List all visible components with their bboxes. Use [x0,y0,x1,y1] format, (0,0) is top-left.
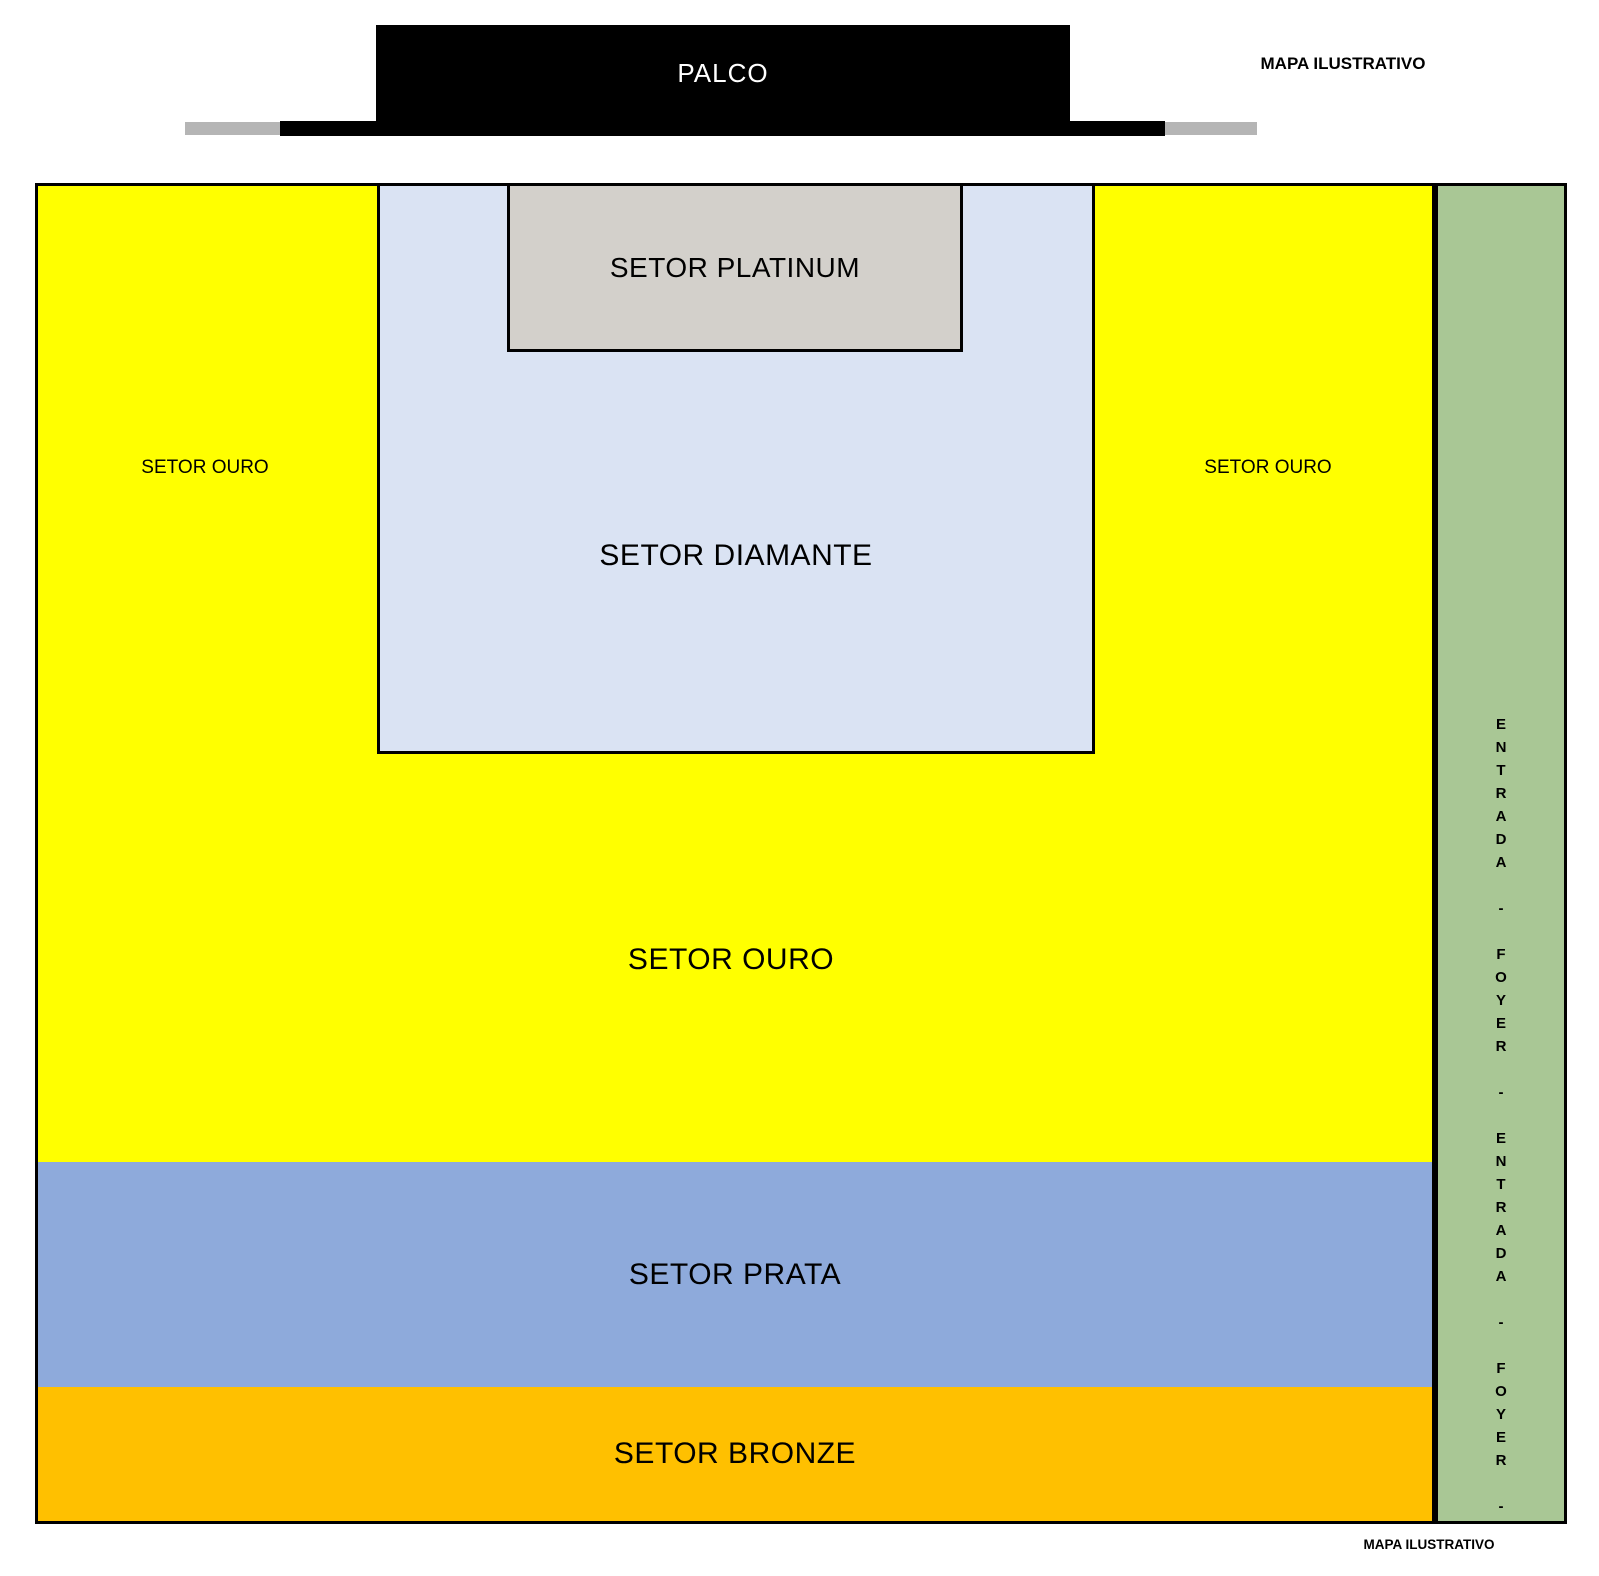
sector-diamante-label: SETOR DIAMANTE [599,539,872,573]
entrance-foyer-strip-text: ENTRADA-FOYER-ENTRADA-FOYER- [1438,186,1564,1518]
entrance-strip-char: A [1438,851,1564,874]
entrance-strip-char: F [1438,943,1564,966]
sector-ouro-label-right: SETOR OURO [1204,457,1331,479]
stage-wing-right [1165,122,1257,135]
entrance-strip-char: F [1438,1357,1564,1380]
entrance-strip-char: A [1438,805,1564,828]
entrance-strip-char: R [1438,1449,1564,1472]
entrance-strip-char: - [1438,1081,1564,1104]
entrance-strip-char: T [1438,1173,1564,1196]
entrance-strip-char: - [1438,1311,1564,1334]
entrance-strip-char: O [1438,1380,1564,1403]
sector-ouro: SETOR PLATINUM SETOR DIAMANTE SETOR OURO… [38,186,1432,1162]
sector-prata: SETOR PRATA [38,1162,1432,1387]
entrance-strip-char [1438,1288,1564,1311]
sector-bronze-label: SETOR BRONZE [614,1437,856,1471]
entrance-strip-char [1438,1472,1564,1495]
entrance-strip-char: T [1438,759,1564,782]
map-note-top: MAPA ILUSTRATIVO [1243,54,1443,74]
stage: PALCO [376,25,1070,121]
sector-prata-label: SETOR PRATA [629,1258,841,1292]
sector-diamante: SETOR PLATINUM SETOR DIAMANTE [377,183,1095,754]
entrance-strip-char: - [1438,897,1564,920]
stage-label: PALCO [677,58,768,89]
entrance-strip-char: E [1438,1127,1564,1150]
entrance-strip-char: D [1438,1242,1564,1265]
entrance-strip-char: A [1438,1219,1564,1242]
sector-bronze: SETOR BRONZE [38,1387,1432,1521]
entrance-strip-char [1438,1334,1564,1357]
entrance-strip-char: O [1438,966,1564,989]
entrance-strip-char: N [1438,736,1564,759]
stage-front-bar [280,121,1165,136]
sector-ouro-label-left: SETOR OURO [141,457,268,479]
entrance-strip-char [1438,874,1564,897]
entrance-strip-char [1438,920,1564,943]
sector-platinum: SETOR PLATINUM [507,183,963,352]
entrance-strip-char: R [1438,1196,1564,1219]
entrance-strip-char: E [1438,713,1564,736]
entrance-strip-char: A [1438,1265,1564,1288]
map-note-bottom: MAPA ILUSTRATIVO [1329,1537,1529,1552]
venue-seating-map: PALCO MAPA ILUSTRATIVO SETOR PLATINUM SE… [0,0,1599,1576]
entrance-strip-char: D [1438,828,1564,851]
entrance-strip-char: E [1438,1426,1564,1449]
entrance-strip-char: R [1438,782,1564,805]
sector-platinum-label: SETOR PLATINUM [610,252,860,284]
entrance-foyer-strip: ENTRADA-FOYER-ENTRADA-FOYER- [1435,183,1567,1524]
seating-area: SETOR PLATINUM SETOR DIAMANTE SETOR OURO… [35,183,1567,1524]
entrance-strip-char: - [1438,1495,1564,1518]
entrance-strip-char: R [1438,1035,1564,1058]
stage-wing-left [185,122,280,135]
entrance-strip-char [1438,1058,1564,1081]
entrance-strip-char: N [1438,1150,1564,1173]
entrance-strip-char [1438,1104,1564,1127]
entrance-strip-char: E [1438,1012,1564,1035]
entrance-strip-char: Y [1438,1403,1564,1426]
sector-ouro-label: SETOR OURO [628,943,834,977]
seating-main-block: SETOR PLATINUM SETOR DIAMANTE SETOR OURO… [35,183,1435,1524]
entrance-strip-char: Y [1438,989,1564,1012]
